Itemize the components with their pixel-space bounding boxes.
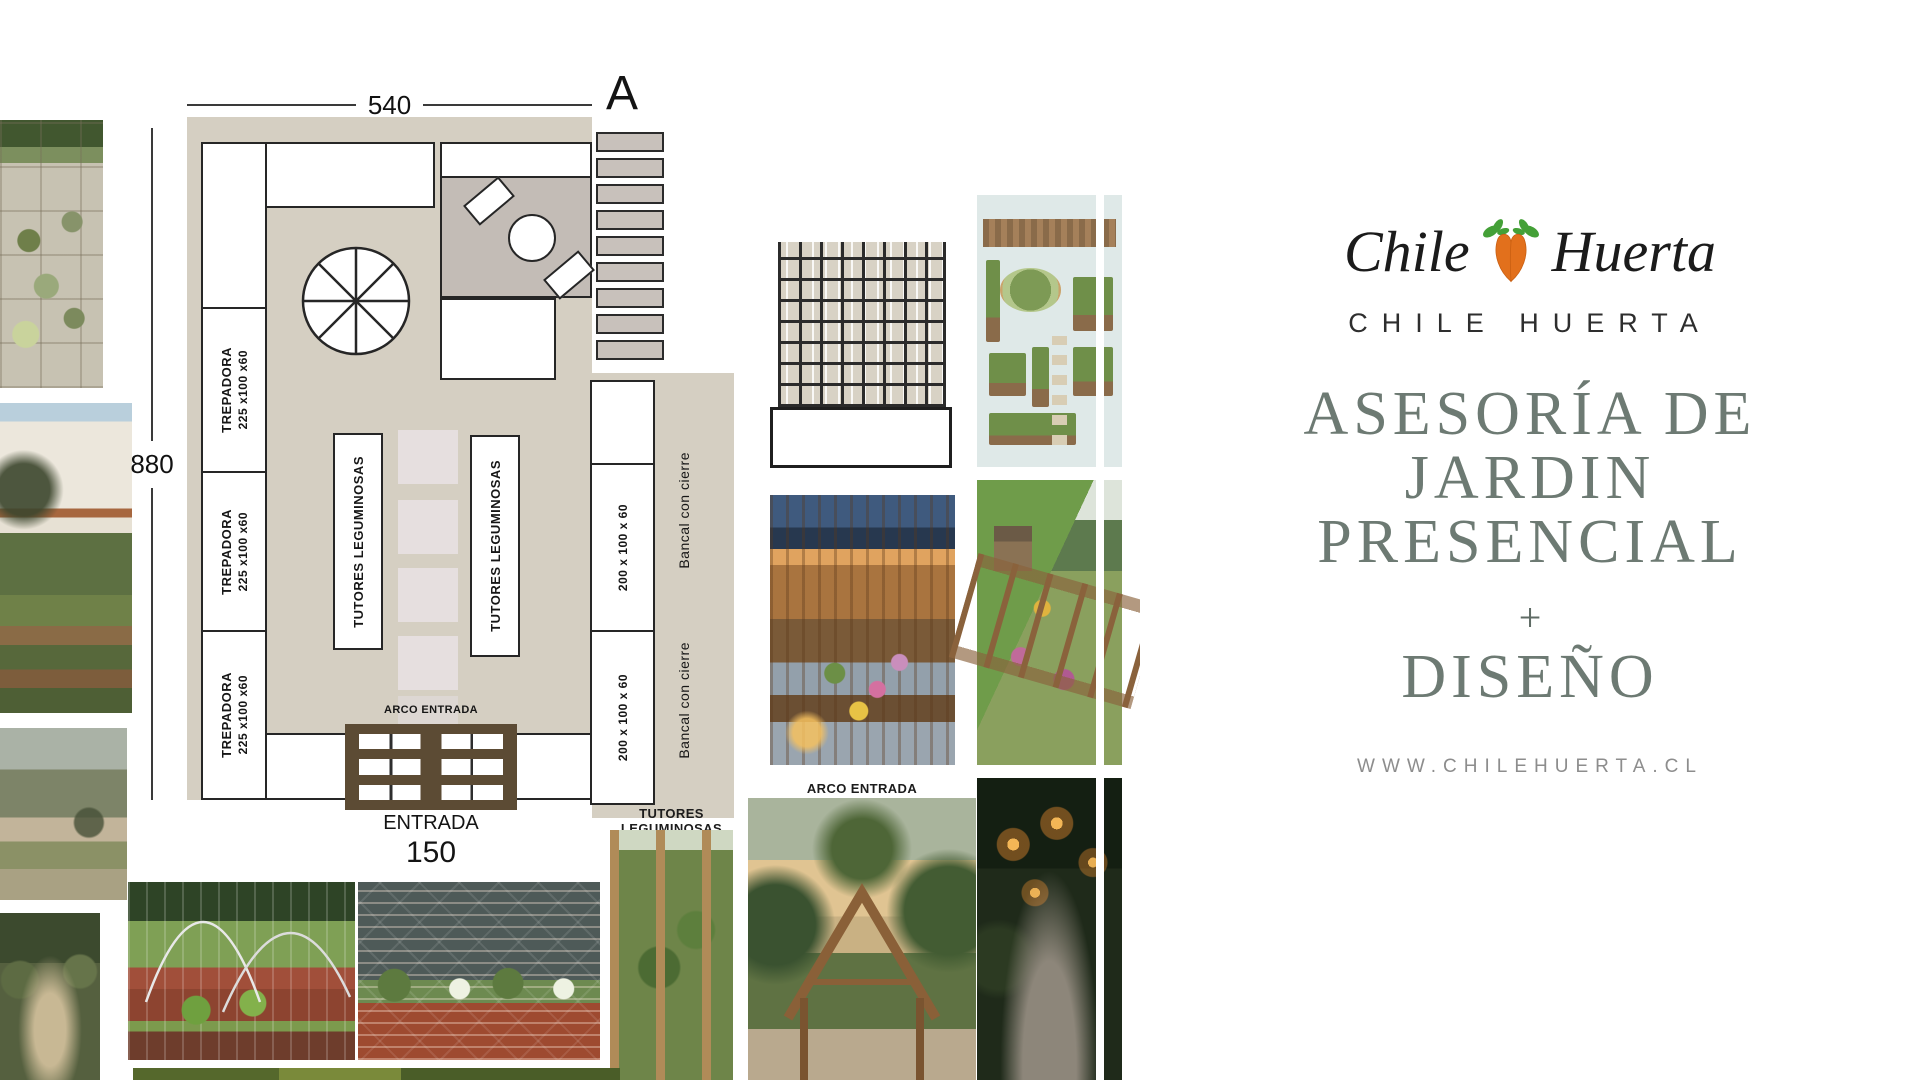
brand-name: CHILE HUERTA: [1140, 308, 1920, 339]
planting-square: [398, 636, 458, 690]
bed-bottom-right: [515, 733, 592, 800]
photo-formal-parterre-garden: [0, 120, 103, 388]
photo-bean-trellis: [610, 830, 733, 1080]
slat: [596, 132, 664, 152]
slat: [596, 288, 664, 308]
garden-design-board: 540 A 880 TREPADORA 225 x100 x60 TREPADO…: [0, 0, 1920, 1080]
carrot-heart-icon: [1472, 215, 1550, 287]
slat: [596, 158, 664, 178]
bancal-label-1: Bancal con cierre: [676, 440, 692, 580]
photo-bottom-strip: [133, 1068, 620, 1080]
pallet-rail: [345, 724, 517, 734]
bed-tutores-right: TUTORES LEGUMINOSAS: [470, 435, 520, 657]
pallet-slats: [345, 734, 517, 749]
bed-left-top: [201, 142, 267, 309]
pallet-slats: [345, 785, 517, 800]
parasol-circle: [300, 245, 412, 357]
collage-gap-line: [1096, 195, 1104, 1080]
photo-house-garden: [0, 403, 132, 713]
trellis-elevation-base: [770, 407, 952, 468]
fence-photo-rail: [948, 553, 1159, 709]
brand-logo: Chile Huerta: [1140, 196, 1920, 306]
bed-below-patio: [440, 298, 556, 380]
bed-right-top: [590, 380, 655, 465]
trepadora-size: 225 x100 x60: [236, 675, 250, 754]
bancal-label-2: Bancal con cierre: [676, 630, 692, 770]
website-url: WWW.CHILEHUERTA.CL: [1140, 756, 1920, 778]
trepadora-size: 225 x100 x60: [236, 350, 250, 429]
slat: [596, 184, 664, 204]
slat-ladder: [596, 132, 664, 360]
pallet-slats: [345, 759, 517, 774]
slat: [596, 262, 664, 282]
trepadora-label: TREPADORA: [219, 509, 234, 595]
illustration-stepping-stones: [1052, 336, 1067, 445]
bed-200x100-1: 200 x 100 x 60: [590, 463, 655, 632]
bed-tutores-left: TUTORES LEGUMINOSAS: [333, 433, 383, 650]
entrance-label: ENTRADA: [345, 812, 517, 835]
patio-chair: [463, 176, 515, 225]
dimension-line: [151, 488, 153, 801]
tutores-label: TUTORES LEGUMINOSAS: [351, 456, 366, 628]
bed-trepadora-1: TREPADORA 225 x100 x60: [201, 307, 267, 473]
title-line-1: ASESORÍA DE: [1140, 383, 1920, 445]
slat: [596, 314, 664, 334]
dimension-top: 540: [187, 92, 592, 118]
bed-size-label: 200 x 100 x 60: [616, 674, 630, 761]
illustration-bed: [986, 260, 1001, 342]
patio-chair: [543, 250, 595, 299]
dimension-left: 880: [142, 128, 162, 800]
arch-entrance-plan-label: ARCO ENTRADA: [345, 704, 517, 716]
trellis-elevation-grid: [778, 242, 946, 407]
title-line-4: DISEÑO: [1140, 646, 1920, 708]
photo-brick-beds-hoops: [128, 882, 355, 1060]
bed-top-right: [440, 142, 592, 178]
dimension-line: [151, 128, 153, 441]
photo-sunset-raised-beds: [770, 495, 955, 765]
planting-square: [398, 500, 458, 554]
section-letter: A: [606, 66, 638, 121]
planting-square: [398, 430, 458, 484]
arch-frame-icon: [748, 798, 976, 1080]
slat: [596, 210, 664, 230]
trepadora-label: TREPADORA: [219, 672, 234, 758]
bed-bottom-left: [265, 733, 347, 800]
illustration-bed: [989, 353, 1027, 397]
photo-herb-path-garden: [0, 913, 100, 1080]
bed-top-long: [265, 142, 435, 208]
slat: [596, 340, 664, 360]
tutores-label: TUTORES LEGUMINOSAS: [488, 460, 503, 632]
dimension-bottom-value: 150: [345, 836, 517, 870]
illustration-bed: [1073, 277, 1114, 331]
pallet-rail: [345, 775, 517, 785]
title-line-2: JARDIN: [1140, 447, 1920, 509]
pallet-gate: [345, 724, 517, 810]
patio-table: [508, 214, 556, 262]
trepadora-label: TREPADORA: [219, 347, 234, 433]
dimension-line: [423, 104, 592, 106]
hoop-arcs-icon: [128, 882, 355, 1060]
caption-arco-entrada: ARCO ENTRADA: [748, 781, 976, 796]
patio-area: [440, 176, 592, 298]
dimension-line: [187, 104, 356, 106]
photo-hillside-garden: [0, 728, 127, 900]
dimension-left-value: 880: [130, 449, 173, 480]
bed-trepadora-2: TREPADORA 225 x100 x60: [201, 471, 267, 632]
bed-200x100-2: 200 x 100 x 60: [590, 630, 655, 805]
photo-brick-planter-lattice: [358, 882, 600, 1060]
planting-square: [398, 568, 458, 622]
bed-trepadora-3: TREPADORA 225 x100 x60: [201, 630, 267, 800]
slat: [596, 236, 664, 256]
bed-size-label: 200 x 100 x 60: [616, 504, 630, 591]
illustration-bed: [1073, 347, 1114, 396]
dimension-top-value: 540: [368, 90, 411, 121]
logo-script-chile: Chile: [1344, 218, 1470, 285]
illustration-circle-bed: [1000, 268, 1061, 312]
pallet-rail: [345, 749, 517, 759]
title-line-3: PRESENCIAL: [1140, 511, 1920, 573]
pallet-rail: [345, 800, 517, 810]
illustration-bed: [1032, 347, 1049, 407]
title-plus: +: [1140, 594, 1920, 641]
photo-garden-arch: [748, 798, 976, 1080]
trepadora-size: 225 x100 x60: [236, 512, 250, 591]
logo-script-huerta: Huerta: [1552, 218, 1716, 285]
